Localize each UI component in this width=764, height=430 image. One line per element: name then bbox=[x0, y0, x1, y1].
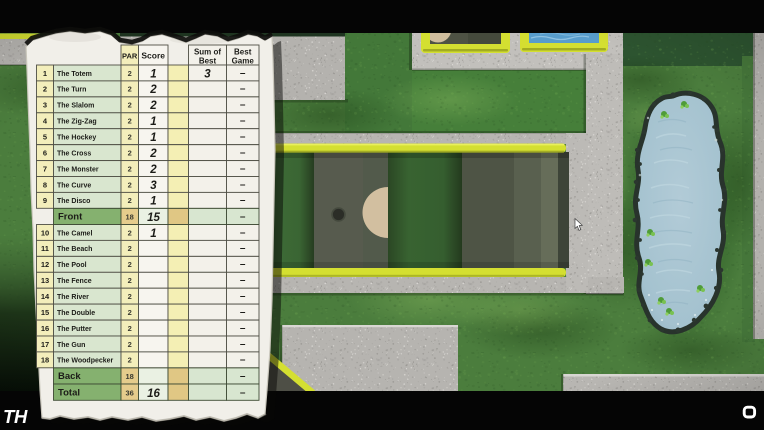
svg-text:2: 2 bbox=[149, 164, 157, 176]
svg-text:–: – bbox=[240, 116, 246, 127]
svg-text:Back: Back bbox=[58, 371, 81, 382]
svg-text:–: – bbox=[240, 227, 246, 238]
svg-text:2: 2 bbox=[128, 276, 132, 285]
svg-text:1: 1 bbox=[43, 69, 47, 78]
svg-text:2: 2 bbox=[128, 180, 132, 189]
svg-text:13: 13 bbox=[41, 276, 49, 285]
svg-text:–: – bbox=[240, 355, 246, 366]
svg-text:2: 2 bbox=[128, 196, 132, 205]
svg-text:–: – bbox=[240, 100, 246, 111]
svg-text:The Fence: The Fence bbox=[57, 278, 92, 285]
svg-text:The Turn: The Turn bbox=[57, 87, 86, 94]
svg-text:Front: Front bbox=[58, 212, 83, 223]
svg-text:18: 18 bbox=[41, 356, 49, 365]
svg-text:1: 1 bbox=[150, 196, 156, 208]
svg-text:2: 2 bbox=[149, 148, 157, 160]
svg-text:3: 3 bbox=[150, 180, 157, 192]
svg-text:2: 2 bbox=[149, 84, 157, 96]
svg-text:The Totem: The Totem bbox=[57, 71, 92, 78]
svg-text:18: 18 bbox=[126, 372, 134, 381]
svg-text:16: 16 bbox=[41, 324, 49, 333]
svg-text:TH: TH bbox=[3, 406, 28, 427]
svg-text:The Putter: The Putter bbox=[57, 326, 92, 333]
svg-text:12: 12 bbox=[41, 260, 49, 269]
svg-text:2: 2 bbox=[128, 149, 132, 158]
svg-text:The Woodpecker: The Woodpecker bbox=[57, 358, 114, 365]
svg-text:The Beach: The Beach bbox=[57, 246, 92, 253]
svg-text:The Hockey: The Hockey bbox=[57, 135, 96, 142]
svg-text:Game: Game bbox=[232, 57, 255, 66]
svg-text:10: 10 bbox=[41, 228, 49, 237]
svg-text:2: 2 bbox=[128, 85, 132, 94]
svg-text:The Double: The Double bbox=[57, 310, 95, 317]
svg-text:14: 14 bbox=[41, 292, 50, 301]
svg-text:11: 11 bbox=[41, 244, 49, 253]
svg-text:7: 7 bbox=[43, 164, 47, 173]
svg-text:–: – bbox=[240, 323, 246, 334]
svg-text:2: 2 bbox=[128, 228, 132, 237]
svg-text:The Pool: The Pool bbox=[57, 262, 87, 269]
svg-text:5: 5 bbox=[43, 133, 47, 142]
svg-text:2: 2 bbox=[128, 324, 132, 333]
svg-text:1: 1 bbox=[150, 68, 156, 80]
svg-text:–: – bbox=[240, 307, 246, 318]
svg-text:Score: Score bbox=[141, 51, 165, 61]
svg-text:–: – bbox=[240, 387, 246, 398]
svg-text:–: – bbox=[240, 132, 246, 143]
svg-text:–: – bbox=[240, 371, 246, 382]
svg-text:3: 3 bbox=[43, 101, 47, 110]
svg-text:–: – bbox=[240, 163, 246, 174]
svg-text:6: 6 bbox=[43, 149, 47, 158]
svg-text:The Cross: The Cross bbox=[57, 151, 91, 158]
svg-text:–: – bbox=[240, 291, 246, 302]
svg-text:–: – bbox=[240, 212, 246, 223]
svg-text:18: 18 bbox=[126, 213, 134, 222]
svg-text:2: 2 bbox=[128, 308, 132, 317]
svg-text:15: 15 bbox=[41, 308, 49, 317]
svg-text:15: 15 bbox=[147, 212, 160, 224]
svg-text:17: 17 bbox=[41, 340, 49, 349]
svg-text:1: 1 bbox=[150, 228, 156, 240]
svg-text:2: 2 bbox=[128, 260, 132, 269]
svg-text:2: 2 bbox=[128, 292, 132, 301]
svg-text:16: 16 bbox=[147, 388, 160, 400]
svg-text:8: 8 bbox=[43, 180, 47, 189]
svg-text:2: 2 bbox=[128, 340, 132, 349]
svg-text:The Monster: The Monster bbox=[57, 166, 99, 173]
svg-text:1: 1 bbox=[150, 116, 156, 128]
svg-text:2: 2 bbox=[128, 356, 132, 365]
svg-text:–: – bbox=[240, 68, 246, 79]
svg-text:36: 36 bbox=[126, 388, 134, 397]
svg-text:–: – bbox=[240, 259, 246, 270]
svg-text:The Curve: The Curve bbox=[57, 182, 91, 189]
svg-text:The Gun: The Gun bbox=[57, 342, 85, 349]
svg-text:The Camel: The Camel bbox=[57, 230, 92, 237]
svg-text:2: 2 bbox=[43, 85, 47, 94]
svg-text:–: – bbox=[240, 339, 246, 350]
svg-text:The River: The River bbox=[57, 294, 89, 301]
svg-text:1: 1 bbox=[150, 132, 156, 144]
svg-text:9: 9 bbox=[43, 196, 47, 205]
svg-text:The Zig-Zag: The Zig-Zag bbox=[57, 119, 97, 126]
svg-text:3: 3 bbox=[204, 68, 211, 80]
svg-text:2: 2 bbox=[128, 164, 132, 173]
svg-text:2: 2 bbox=[128, 69, 132, 78]
svg-text:2: 2 bbox=[128, 117, 132, 126]
svg-text:2: 2 bbox=[128, 133, 132, 142]
svg-text:–: – bbox=[240, 179, 246, 190]
svg-text:The Slalom: The Slalom bbox=[57, 103, 94, 110]
svg-text:–: – bbox=[240, 195, 246, 206]
svg-text:The Disco: The Disco bbox=[57, 198, 90, 205]
svg-text:Total: Total bbox=[58, 387, 80, 398]
svg-text:–: – bbox=[240, 148, 246, 159]
svg-text:2: 2 bbox=[128, 101, 132, 110]
svg-text:PAR: PAR bbox=[122, 52, 138, 61]
svg-text:Best: Best bbox=[199, 57, 217, 66]
svg-text:2: 2 bbox=[128, 244, 132, 253]
svg-text:–: – bbox=[240, 243, 246, 254]
svg-text:–: – bbox=[240, 275, 246, 286]
svg-text:Sum of: Sum of bbox=[194, 48, 221, 57]
svg-text:Best: Best bbox=[234, 48, 252, 57]
svg-text:–: – bbox=[240, 84, 246, 95]
svg-text:2: 2 bbox=[149, 100, 157, 112]
